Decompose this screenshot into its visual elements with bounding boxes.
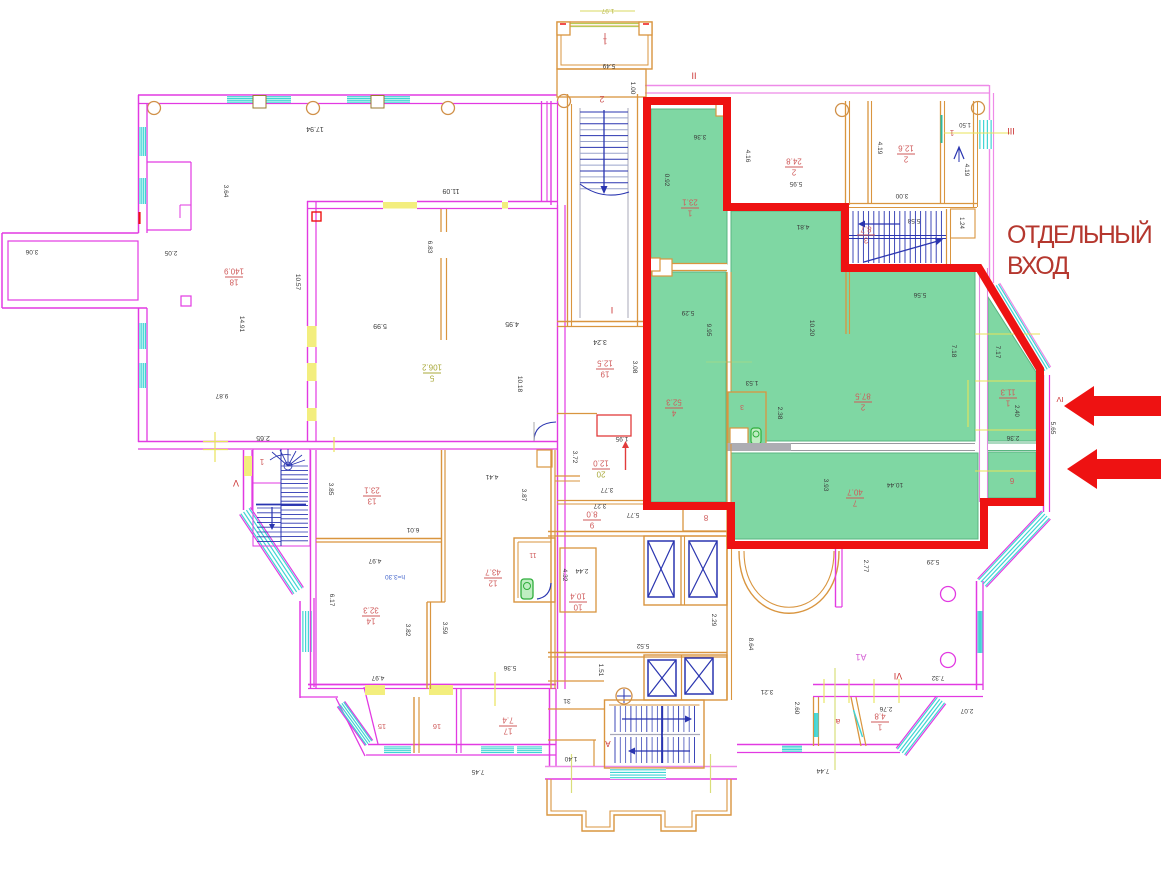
- svg-text:5.29: 5.29: [681, 309, 694, 316]
- svg-text:10.44: 10.44: [886, 481, 903, 488]
- svg-text:8.0: 8.0: [586, 510, 598, 519]
- svg-text:8.7: 8.7: [860, 225, 872, 234]
- svg-text:h=3.30: h=3.30: [385, 573, 405, 580]
- svg-text:1.40: 1.40: [564, 755, 577, 762]
- svg-text:III: III: [1007, 126, 1015, 136]
- svg-text:16: 16: [433, 722, 441, 731]
- svg-text:17: 17: [503, 727, 512, 736]
- svg-text:2: 2: [791, 168, 796, 177]
- svg-text:12: 12: [488, 579, 497, 588]
- svg-text:A: A: [605, 739, 611, 748]
- svg-text:7: 7: [852, 499, 857, 508]
- svg-text:1: 1: [259, 457, 264, 466]
- svg-text:9.95: 9.95: [705, 324, 712, 337]
- svg-text:11.3: 11.3: [1000, 388, 1016, 397]
- svg-text:ВХОД: ВХОД: [1007, 252, 1070, 280]
- svg-text:3.21: 3.21: [760, 688, 773, 695]
- svg-text:4.19: 4.19: [963, 164, 970, 177]
- svg-text:3.00: 3.00: [895, 192, 908, 199]
- svg-text:3.87: 3.87: [520, 489, 527, 502]
- svg-text:10.18: 10.18: [516, 376, 523, 393]
- svg-text:5.56: 5.56: [913, 291, 926, 298]
- svg-text:4: 4: [671, 409, 676, 418]
- svg-text:31: 31: [563, 697, 571, 704]
- svg-text:3.93: 3.93: [822, 479, 829, 492]
- svg-text:7.32: 7.32: [931, 674, 944, 681]
- svg-text:1.00: 1.00: [629, 82, 636, 95]
- svg-text:a: a: [835, 717, 840, 726]
- svg-text:9.87: 9.87: [215, 392, 228, 399]
- svg-text:I: I: [611, 305, 614, 315]
- svg-text:3.24: 3.24: [593, 338, 607, 345]
- svg-text:2.77: 2.77: [862, 560, 869, 573]
- svg-text:V: V: [233, 478, 239, 488]
- svg-text:5.99: 5.99: [373, 322, 387, 329]
- svg-text:4.97: 4.97: [371, 674, 384, 681]
- svg-text:2: 2: [903, 155, 908, 164]
- svg-text:1.51: 1.51: [597, 664, 604, 677]
- svg-text:4.95: 4.95: [505, 320, 519, 327]
- svg-text:6.83: 6.83: [426, 241, 433, 254]
- svg-text:II: II: [691, 71, 696, 81]
- svg-text:10.20: 10.20: [808, 320, 815, 337]
- svg-text:8.64: 8.64: [747, 638, 754, 651]
- svg-text:4.81: 4.81: [796, 223, 809, 230]
- svg-text:3.72: 3.72: [571, 451, 578, 464]
- svg-text:11.09: 11.09: [442, 187, 459, 194]
- svg-text:4.19: 4.19: [876, 142, 883, 155]
- svg-text:3.27: 3.27: [593, 502, 606, 509]
- svg-text:2.36: 2.36: [1006, 434, 1019, 441]
- svg-text:5.58: 5.58: [907, 217, 920, 224]
- svg-text:3.06: 3.06: [25, 248, 38, 255]
- svg-text:24.8: 24.8: [786, 157, 802, 166]
- svg-text:3.82: 3.82: [404, 624, 411, 637]
- svg-text:13: 13: [367, 497, 376, 506]
- svg-text:12.5: 12.5: [597, 359, 613, 368]
- svg-text:2.29: 2.29: [710, 614, 717, 627]
- svg-text:2: 2: [599, 94, 604, 104]
- svg-text:2.76: 2.76: [879, 705, 892, 712]
- svg-text:140.9: 140.9: [223, 267, 244, 276]
- svg-text:4.41: 4.41: [485, 473, 498, 480]
- svg-text:3.59: 3.59: [441, 622, 448, 635]
- svg-text:VI: VI: [894, 671, 903, 681]
- svg-text:2.38: 2.38: [776, 407, 783, 420]
- svg-text:12.6: 12.6: [898, 144, 914, 153]
- svg-text:1: 1: [1005, 399, 1010, 408]
- svg-text:1.53: 1.53: [745, 379, 758, 386]
- svg-text:106.2: 106.2: [421, 363, 442, 372]
- svg-text:1: 1: [877, 723, 882, 732]
- svg-text:2.40: 2.40: [1013, 405, 1019, 417]
- svg-text:5: 5: [429, 374, 434, 383]
- svg-text:3.08: 3.08: [631, 361, 638, 374]
- svg-text:2: 2: [860, 403, 865, 412]
- svg-text:9: 9: [589, 521, 594, 530]
- svg-text:23.1: 23.1: [364, 486, 380, 495]
- svg-text:40.7: 40.7: [847, 488, 863, 497]
- svg-text:5.52: 5.52: [636, 642, 649, 649]
- svg-text:4.16: 4.16: [744, 150, 751, 163]
- svg-text:10.4: 10.4: [570, 592, 586, 601]
- svg-text:7.18: 7.18: [950, 345, 957, 358]
- svg-text:2.44: 2.44: [575, 567, 588, 574]
- svg-text:2.65: 2.65: [256, 434, 270, 441]
- svg-text:3.64: 3.64: [222, 185, 229, 198]
- svg-text:3.36: 3.36: [693, 133, 706, 140]
- svg-text:4.32: 4.32: [561, 569, 568, 582]
- svg-text:12.0: 12.0: [593, 459, 609, 468]
- svg-text:4.97: 4.97: [368, 557, 381, 564]
- svg-text:19: 19: [600, 370, 609, 379]
- svg-text:20: 20: [596, 470, 605, 479]
- svg-text:1.97: 1.97: [601, 7, 614, 14]
- svg-text:17.94: 17.94: [306, 125, 324, 132]
- svg-text:1: 1: [687, 209, 692, 218]
- svg-text:10: 10: [573, 603, 582, 612]
- svg-text:2.05: 2.05: [164, 249, 177, 256]
- svg-text:1.24: 1.24: [958, 217, 964, 229]
- svg-text:32.3: 32.3: [363, 606, 379, 615]
- svg-text:5.65: 5.65: [1049, 422, 1056, 435]
- svg-text:7.17: 7.17: [994, 346, 1001, 359]
- svg-text:18: 18: [229, 278, 238, 287]
- svg-text:7.4: 7.4: [502, 716, 514, 725]
- svg-text:23.1: 23.1: [682, 198, 698, 207]
- svg-text:6.17: 6.17: [328, 594, 335, 607]
- svg-text:8: 8: [703, 513, 708, 522]
- svg-text:1.50: 1.50: [959, 121, 971, 127]
- svg-text:5.77: 5.77: [626, 511, 639, 518]
- svg-text:14.91: 14.91: [238, 316, 245, 333]
- svg-text:43.7: 43.7: [485, 568, 501, 577]
- svg-text:3.85: 3.85: [327, 483, 334, 496]
- svg-text:ОТДЕЛЬНЫЙ: ОТДЕЛЬНЫЙ: [1007, 219, 1151, 249]
- svg-text:IV: IV: [1056, 395, 1063, 404]
- svg-text:A1: A1: [855, 652, 866, 662]
- svg-text:3: 3: [740, 403, 744, 410]
- svg-text:7.44: 7.44: [816, 767, 829, 774]
- svg-text:5.29: 5.29: [926, 558, 939, 565]
- svg-text:1.95: 1.95: [615, 435, 628, 442]
- svg-text:52.3: 52.3: [666, 398, 682, 407]
- svg-text:15: 15: [378, 722, 386, 731]
- svg-text:3.77: 3.77: [600, 486, 613, 493]
- svg-text:11: 11: [529, 551, 536, 558]
- svg-text:5.49: 5.49: [602, 62, 615, 69]
- svg-text:6.01: 6.01: [406, 526, 419, 533]
- svg-text:6: 6: [1009, 476, 1014, 485]
- svg-text:87.5: 87.5: [855, 392, 871, 401]
- svg-text:0.92: 0.92: [663, 174, 670, 187]
- svg-text:14: 14: [366, 617, 375, 626]
- svg-text:3: 3: [863, 236, 868, 245]
- svg-text:5.36: 5.36: [503, 664, 516, 671]
- svg-text:1: 1: [949, 128, 954, 137]
- svg-text:10.57: 10.57: [294, 274, 301, 291]
- svg-text:7.45: 7.45: [471, 768, 484, 775]
- svg-text:5.95: 5.95: [789, 180, 802, 187]
- svg-text:2.07: 2.07: [960, 707, 973, 714]
- svg-text:2.60: 2.60: [793, 702, 800, 715]
